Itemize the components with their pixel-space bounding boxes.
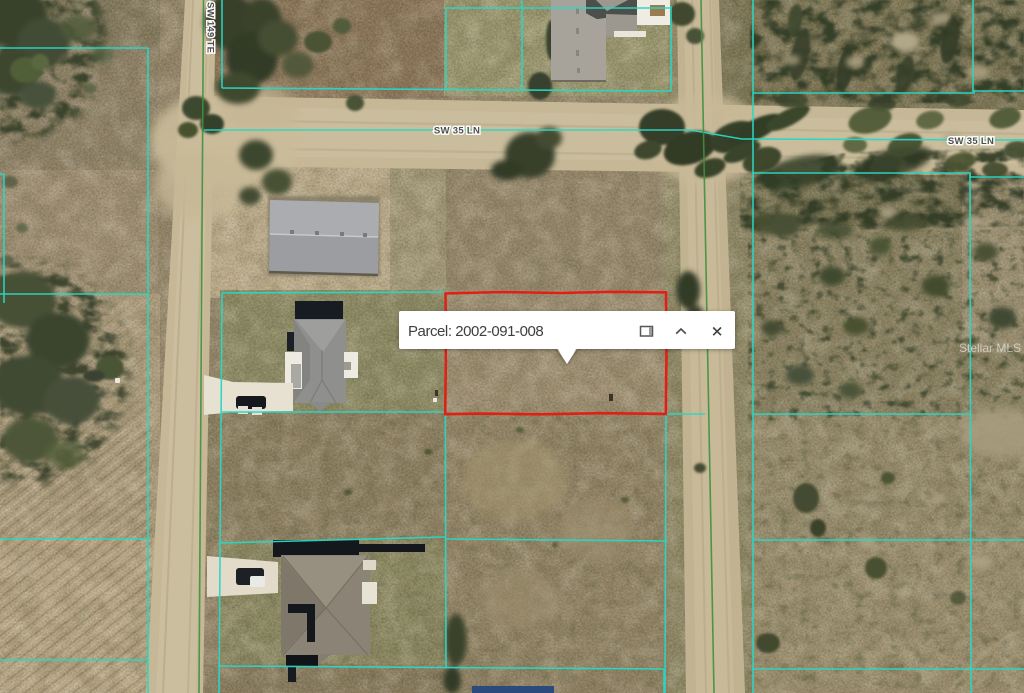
svg-text:SW 35 LN: SW 35 LN <box>948 136 994 147</box>
svg-text:SW 35 LN: SW 35 LN <box>434 126 480 137</box>
svg-text:SW 149 TE: SW 149 TE <box>205 2 216 53</box>
svg-text:Stellar MLS: Stellar MLS <box>959 341 1021 355</box>
svg-text:Parcel: 2002-091-008: Parcel: 2002-091-008 <box>408 323 543 340</box>
